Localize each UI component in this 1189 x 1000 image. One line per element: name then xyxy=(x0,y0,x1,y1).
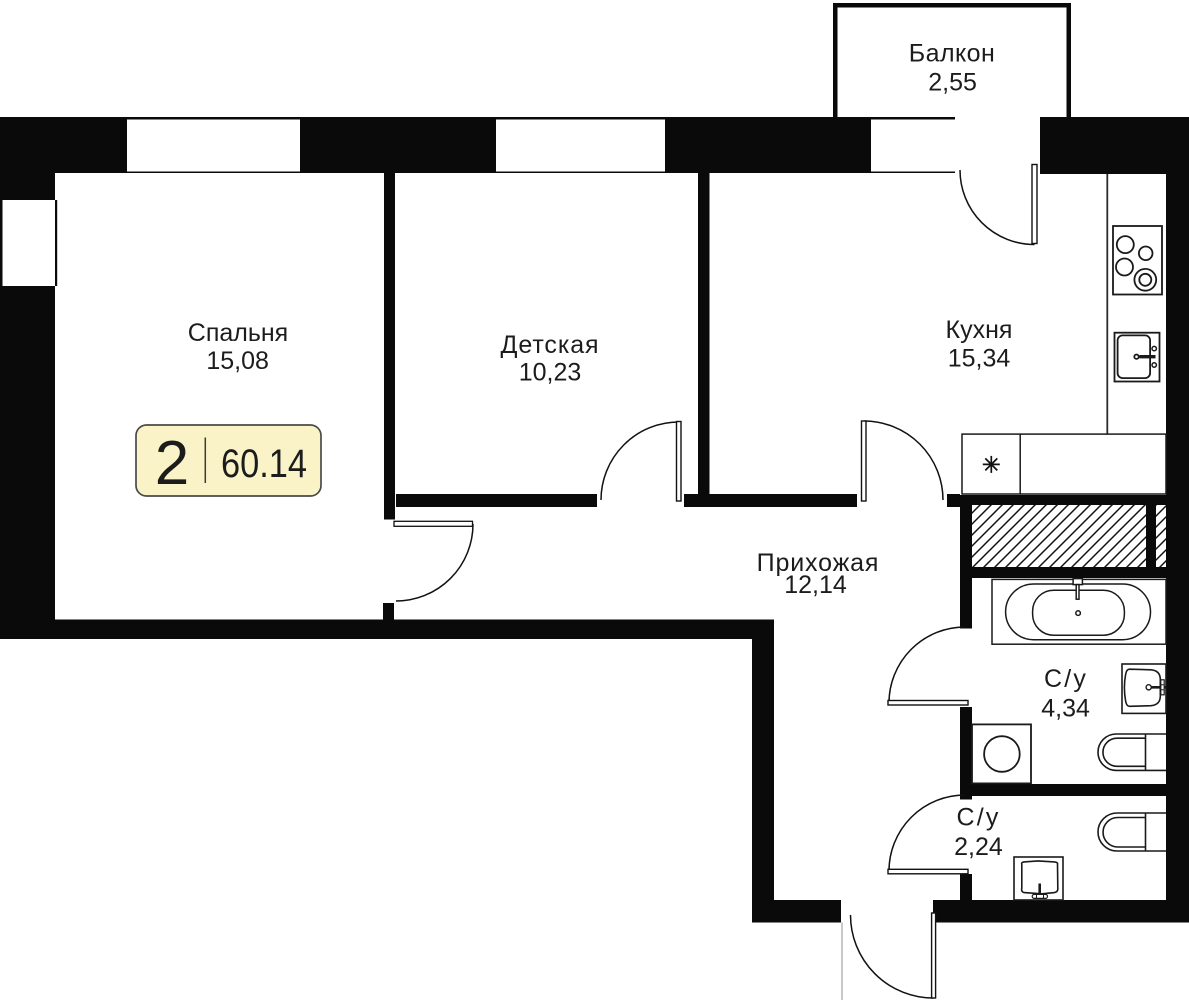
svg-text:2,55: 2,55 xyxy=(928,69,977,97)
svg-text:С/у: С/у xyxy=(957,804,1001,832)
svg-text:12,14: 12,14 xyxy=(784,571,847,599)
svg-text:С/у: С/у xyxy=(1044,665,1088,693)
svg-text:Балкон: Балкон xyxy=(909,40,996,68)
svg-text:4,34: 4,34 xyxy=(1041,694,1090,722)
svg-text:60.14: 60.14 xyxy=(221,442,307,486)
svg-text:2: 2 xyxy=(155,429,189,498)
svg-text:Кухня: Кухня xyxy=(946,316,1013,344)
svg-text:10,23: 10,23 xyxy=(519,359,582,387)
svg-text:15,34: 15,34 xyxy=(948,345,1011,373)
svg-text:15,08: 15,08 xyxy=(206,347,269,375)
svg-text:Спальня: Спальня xyxy=(188,319,288,347)
svg-text:2,24: 2,24 xyxy=(954,833,1003,861)
svg-text:Детская: Детская xyxy=(501,331,600,359)
